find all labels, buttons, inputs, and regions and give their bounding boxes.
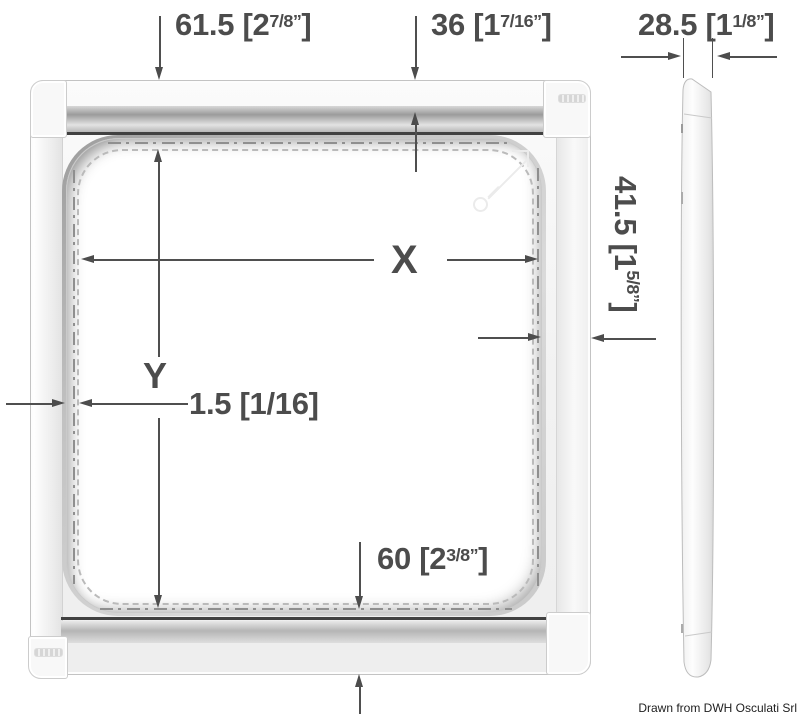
dim-61-5-frac: 7/8”	[269, 11, 301, 31]
centerline-top	[108, 142, 512, 144]
dimension-arrow-61-5-head	[155, 67, 163, 83]
dim-36-frac: 7/16”	[500, 11, 541, 31]
dimension-label-61-5: 61.5 [27/8”]	[175, 8, 311, 42]
technical-drawing-canvas: 61.5 [27/8”] 36 [17/16”] 28.5 [11/8”] 41…	[0, 0, 800, 720]
dimension-arrow-x-right-head	[525, 255, 541, 263]
dimension-arrow-60-line	[359, 542, 361, 596]
dimension-arrow-41-5-inner-head	[528, 333, 544, 341]
dim-41-5-close: ]	[608, 302, 643, 312]
dimension-arrow-y-bottom-head	[154, 595, 162, 611]
side-profile-view	[676, 74, 718, 686]
side-profile-body	[681, 79, 713, 677]
dim-36-close: ]	[542, 7, 552, 42]
corner-cap-top-left	[30, 80, 67, 138]
dimension-arrow-28-5-left-line	[621, 56, 668, 58]
watermark-ring	[473, 197, 488, 212]
dimension-arrow-y-top-line	[158, 159, 160, 357]
dimension-label-1-5: 1.5 [1/16]	[189, 387, 319, 421]
dimension-arrow-61-5-line	[159, 16, 161, 69]
dimension-arrow-1-5-inner-line	[89, 403, 188, 405]
dim-1-5-main: 1.5 [1/16]	[189, 386, 319, 421]
dimension-arrow-x-left-line	[90, 259, 374, 261]
dimension-arrow-28-5-left-head	[668, 52, 684, 60]
dim-61-5-close: ]	[301, 7, 311, 42]
dimension-arrow-41-5-inner-line	[478, 337, 528, 339]
dim-60-main: 60 [2	[377, 541, 446, 576]
corner-cap-top-right	[543, 80, 591, 138]
frame-left-profile	[33, 94, 63, 642]
dim-28-5-main: 28.5 [1	[638, 7, 732, 42]
corner-cap-bottom-left	[28, 636, 68, 679]
frame-right-profile	[556, 94, 588, 642]
dim-61-5-main: 61.5 [2	[175, 7, 269, 42]
dimension-arrow-60-outer-line	[359, 684, 361, 714]
dim-28-5-close: ]	[764, 7, 774, 42]
dim-41-5-main: 41.5 [1	[608, 176, 643, 270]
dimension-arrow-36-line	[415, 16, 417, 69]
side-profile-tick-1	[681, 124, 683, 133]
bottom-rail-edge-line	[61, 617, 551, 620]
dimension-arrow-36-inner-line	[415, 121, 417, 172]
dimension-label-36: 36 [17/16”]	[431, 8, 552, 42]
dim-60-close: ]	[478, 541, 488, 576]
dimension-label-28-5: 28.5 [11/8”]	[638, 8, 774, 42]
brand-badge-top-right	[558, 94, 586, 103]
dim-60-frac: 3/8”	[446, 545, 478, 565]
side-profile-tick-3	[681, 624, 683, 633]
dimension-arrow-1-5-outer-head	[52, 399, 68, 407]
credit-text: Drawn from DWH Osculati Srl	[638, 702, 797, 715]
dimension-label-x: X	[391, 238, 417, 282]
bottom-roller-rail	[61, 621, 551, 643]
dimension-label-y: Y	[143, 356, 167, 396]
dimension-arrow-28-5-right-line	[727, 56, 777, 58]
dimension-arrow-1-5-outer-line	[6, 403, 52, 405]
side-profile-tick-2	[681, 192, 683, 204]
dimension-arrow-36-head	[411, 67, 419, 83]
dimension-arrow-60-head	[355, 596, 363, 612]
centerline-right	[537, 168, 539, 588]
centerline-left	[73, 170, 75, 584]
dim-28-5-frac: 1/8”	[732, 11, 764, 31]
dim-41-5-frac: 5/8”	[623, 270, 643, 302]
dimension-arrow-x-right-line	[447, 259, 526, 261]
dimension-arrow-41-5-outer-line	[601, 338, 656, 340]
brand-badge-bottom-left	[34, 648, 63, 657]
dimension-label-41-5: 41.5 [15/8”]	[608, 176, 642, 312]
extension-line-28-5-left	[683, 38, 684, 78]
dim-36-main: 36 [1	[431, 7, 500, 42]
dimension-arrow-y-bottom-line	[158, 418, 160, 596]
watermark-arrow-head	[512, 150, 529, 167]
corner-cap-bottom-right	[546, 612, 591, 675]
extension-line-28-5-right	[712, 38, 713, 78]
top-roller-rail	[60, 106, 547, 133]
dimension-label-60: 60 [23/8”]	[377, 542, 488, 576]
